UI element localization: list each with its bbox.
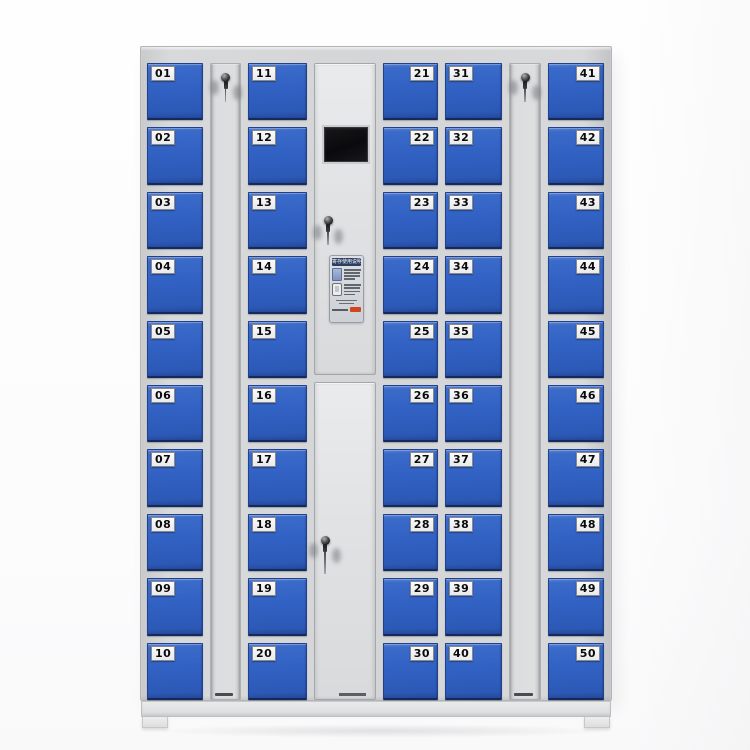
door-number-label: 39 [449, 581, 473, 596]
door-number-label: 21 [410, 66, 434, 81]
door-number-label: 10 [151, 646, 175, 661]
key-shaft-icon [327, 232, 329, 245]
locker-door: 11 [248, 63, 307, 120]
locker-door: 21 [383, 63, 438, 120]
locker-door: 07 [147, 449, 203, 506]
locker-door: 42 [548, 127, 604, 184]
locker-door: 39 [445, 578, 502, 635]
cabinet-foot-right [584, 717, 610, 728]
key-panel-right [509, 63, 541, 700]
locker-door: 29 [383, 578, 438, 635]
door-number-label: 37 [449, 452, 473, 467]
locker-door: 24 [383, 256, 438, 313]
door-number-label: 36 [449, 388, 473, 403]
door-number-label: 27 [410, 452, 434, 467]
locker-door: 46 [548, 385, 604, 442]
key-icon [224, 81, 228, 89]
door-number-label: 18 [252, 517, 276, 532]
key-icon [323, 544, 327, 552]
locker-door: 01 [147, 63, 203, 120]
locker-door: 16 [248, 385, 307, 442]
locker-door: 18 [248, 514, 307, 571]
door-number-label: 46 [576, 388, 600, 403]
locker-door: 35 [445, 321, 502, 378]
key-lock-icon [516, 73, 534, 102]
sticker-note-lines [332, 300, 361, 305]
locker-door: 09 [147, 578, 203, 635]
locker-door: 48 [548, 514, 604, 571]
locker-door: 23 [383, 192, 438, 249]
door-number-label: 11 [252, 66, 276, 81]
door-number-label: 23 [410, 195, 434, 210]
sticker-footer-line [332, 309, 348, 311]
locker-door: 44 [548, 256, 604, 313]
door-number-label: 34 [449, 259, 473, 274]
locker-door: 32 [445, 127, 502, 184]
door-number-label: 17 [252, 452, 276, 467]
locker-door: 38 [445, 514, 502, 571]
locker-door: 47 [548, 449, 604, 506]
door-number-label: 47 [576, 452, 600, 467]
door-number-label: 12 [252, 130, 276, 145]
control-panel-lower-door [314, 382, 376, 700]
locker-door: 36 [445, 385, 502, 442]
cabinet-foot-left [142, 717, 168, 728]
locker-door: 45 [548, 321, 604, 378]
locker-door: 27 [383, 449, 438, 506]
locker-door: 08 [147, 514, 203, 571]
control-panel-upper-door: 寄存使用说明 [314, 63, 376, 375]
key-icon [523, 81, 527, 89]
cabinet-base [141, 701, 611, 717]
door-number-label: 06 [151, 388, 175, 403]
door-number-label: 14 [252, 259, 276, 274]
locker-door: 22 [383, 127, 438, 184]
locker-door: 26 [383, 385, 438, 442]
door-number-label: 22 [410, 130, 434, 145]
door-number-label: 44 [576, 259, 600, 274]
door-number-label: 42 [576, 130, 600, 145]
locker-door: 28 [383, 514, 438, 571]
locker-door: 03 [147, 192, 203, 249]
door-number-label: 31 [449, 66, 473, 81]
locker-door: 05 [147, 321, 203, 378]
door-number-label: 35 [449, 324, 473, 339]
door-number-label: 24 [410, 259, 434, 274]
door-number-label: 43 [576, 195, 600, 210]
door-number-label: 13 [252, 195, 276, 210]
door-column-5: 41424344454647484950 [548, 63, 604, 700]
door-number-label: 02 [151, 130, 175, 145]
locker-door: 33 [445, 192, 502, 249]
locker-door: 12 [248, 127, 307, 184]
door-number-label: 16 [252, 388, 276, 403]
scanner-device-icon [332, 268, 342, 281]
door-number-label: 04 [151, 259, 175, 274]
locker-cabinet: 01020304050607080910 1112131415161718192… [140, 46, 612, 730]
door-number-label: 32 [449, 130, 473, 145]
locker-door: 50 [548, 643, 604, 700]
key-shaft-icon [324, 552, 326, 574]
key-panel-left [210, 63, 241, 700]
door-number-label: 15 [252, 324, 276, 339]
sticker-title: 寄存使用说明 [332, 258, 361, 266]
locker-door: 25 [383, 321, 438, 378]
door-number-label: 08 [151, 517, 175, 532]
locker-door: 14 [248, 256, 307, 313]
door-number-label: 05 [151, 324, 175, 339]
locker-door: 31 [445, 63, 502, 120]
sticker-text-lines [344, 283, 361, 296]
locker-door: 41 [548, 63, 604, 120]
locker-door: 04 [147, 256, 203, 313]
locker-door: 19 [248, 578, 307, 635]
locker-door: 49 [548, 578, 604, 635]
door-number-label: 28 [410, 517, 434, 532]
locker-door: 30 [383, 643, 438, 700]
door-column-4: 31323334353637383940 [445, 63, 502, 700]
locker-door: 10 [147, 643, 203, 700]
cabinet-columns: 01020304050607080910 1112131415161718192… [147, 63, 604, 700]
locker-door: 17 [248, 449, 307, 506]
door-number-label: 19 [252, 581, 276, 596]
locker-door: 02 [147, 127, 203, 184]
locker-door: 40 [445, 643, 502, 700]
door-number-label: 49 [576, 581, 600, 596]
control-panel-column: 寄存使用说明 [314, 63, 376, 700]
sticker-text-lines [344, 268, 361, 281]
door-number-label: 45 [576, 324, 600, 339]
sticker-step-1 [332, 268, 361, 281]
door-number-label: 26 [410, 388, 434, 403]
door-number-label: 50 [576, 646, 600, 661]
door-number-label: 33 [449, 195, 473, 210]
door-number-label: 20 [252, 646, 276, 661]
key-lock-icon [319, 216, 337, 245]
usage-instructions-sticker: 寄存使用说明 [329, 255, 364, 323]
red-badge [350, 307, 361, 312]
key-icon [326, 224, 330, 232]
door-number-label: 03 [151, 195, 175, 210]
door-column-3: 21222324252627282930 [383, 63, 438, 700]
door-column-1: 01020304050607080910 [147, 63, 203, 700]
sticker-step-2 [332, 283, 361, 296]
key-shaft-icon [524, 89, 526, 102]
key-lock-icon [316, 536, 334, 574]
door-number-label: 25 [410, 324, 434, 339]
door-number-label: 41 [576, 66, 600, 81]
door-column-2: 11121314151617181920 [248, 63, 307, 700]
locker-door: 34 [445, 256, 502, 313]
locker-door: 43 [548, 192, 604, 249]
sticker-footer [332, 307, 361, 312]
locker-door: 20 [248, 643, 307, 700]
locker-door: 37 [445, 449, 502, 506]
door-number-label: 07 [151, 452, 175, 467]
key-lock-icon [217, 73, 235, 102]
door-number-label: 29 [410, 581, 434, 596]
product-photo-locker: 01020304050607080910 1112131415161718192… [0, 0, 750, 750]
door-number-label: 30 [410, 646, 434, 661]
key-shaft-icon [225, 89, 227, 102]
door-number-label: 38 [449, 517, 473, 532]
lcd-display [324, 127, 368, 162]
door-number-label: 01 [151, 66, 175, 81]
locker-door: 15 [248, 321, 307, 378]
door-number-label: 09 [151, 581, 175, 596]
locker-door: 06 [147, 385, 203, 442]
phone-icon [332, 283, 342, 296]
door-number-label: 48 [576, 517, 600, 532]
locker-door: 13 [248, 192, 307, 249]
door-number-label: 40 [449, 646, 473, 661]
